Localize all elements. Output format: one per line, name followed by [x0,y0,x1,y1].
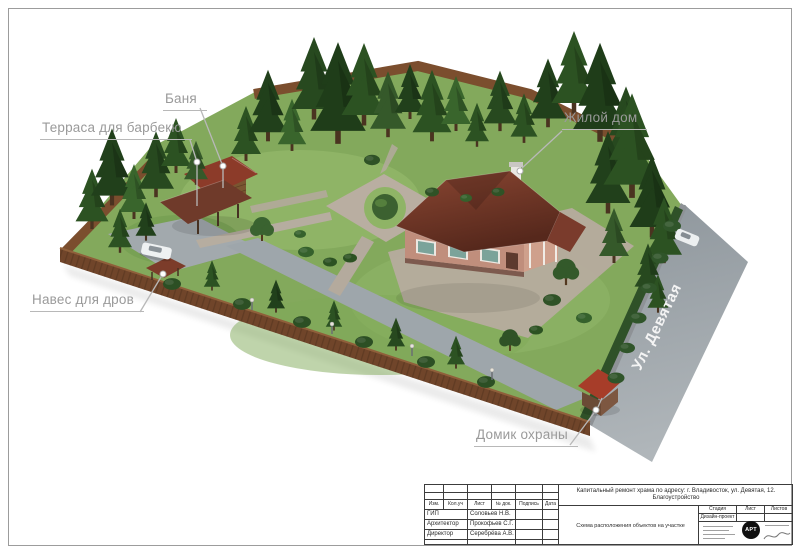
revision-header-izm: Изм. [425,499,443,509]
revision-header-data: Дата [543,499,558,509]
label-guard-house: Домик охраны [474,427,578,447]
fine-print-line [765,525,789,526]
label-firewood-shed: Навес для дров [30,292,144,312]
stage-header-list: Лист [737,505,764,513]
signature-role-director: Директор [425,529,469,539]
project-title-line1: Капитальный ремонт храма по адресу: г. В… [577,488,776,495]
signature-name-director: Серебрёва А.В. [468,529,517,539]
fine-print-line [703,526,733,527]
stage-header-stadiya: Стадия [699,505,736,513]
sheet-title: Схема расположения объектов на участке [559,506,702,545]
label-bathhouse-text: Баня [165,91,197,106]
label-residential-house-text: Жилой дом [564,110,637,125]
signature-squiggle [763,529,791,543]
stamp-divider [425,539,558,540]
stamp-divider [542,485,543,545]
revision-header-podpis: Подпись [516,499,542,509]
label-bbq-terrace: Терраса для барбекю [40,120,192,140]
stamp-divider [425,492,558,493]
label-firewood-shed-text: Навес для дров [32,292,134,307]
signature-role-gip: ГИП [425,509,469,519]
stage-header-listov: Листов [765,505,793,513]
revision-header-koluch: Кол.уч [444,499,467,509]
project-title-line2: Благоустройство [653,495,700,502]
label-bathhouse: Баня [163,91,207,111]
label-guard-house-text: Домик охраны [476,427,568,442]
signature-role-architect: Архитектор [425,519,469,529]
revision-header-list: Лист [468,499,491,509]
project-title: Капитальный ремонт храма по адресу: г. В… [559,485,793,505]
stage-value: Дизайн-проект [699,513,736,521]
fine-print-line [703,538,725,539]
label-residential-house: Жилой дом [562,110,647,130]
art-logo: АРТ [742,521,760,539]
label-bbq-terrace-text: Терраса для барбекю [42,120,182,135]
fine-print-line [703,530,729,531]
title-block: Изм. Кол.уч Лист № док. Подпись Дата ГИП… [424,484,793,545]
revision-header-doc: № док. [492,499,515,509]
signature-name-architect: Прокофьев С.Г. [468,519,517,529]
fine-print-line [703,534,735,535]
site-plan-render [0,0,800,549]
drawing-sheet: Баня Терраса для барбекю Жилой дом Навес… [0,0,800,549]
signature-name-gip: Соловьев Н.В. [468,509,517,519]
